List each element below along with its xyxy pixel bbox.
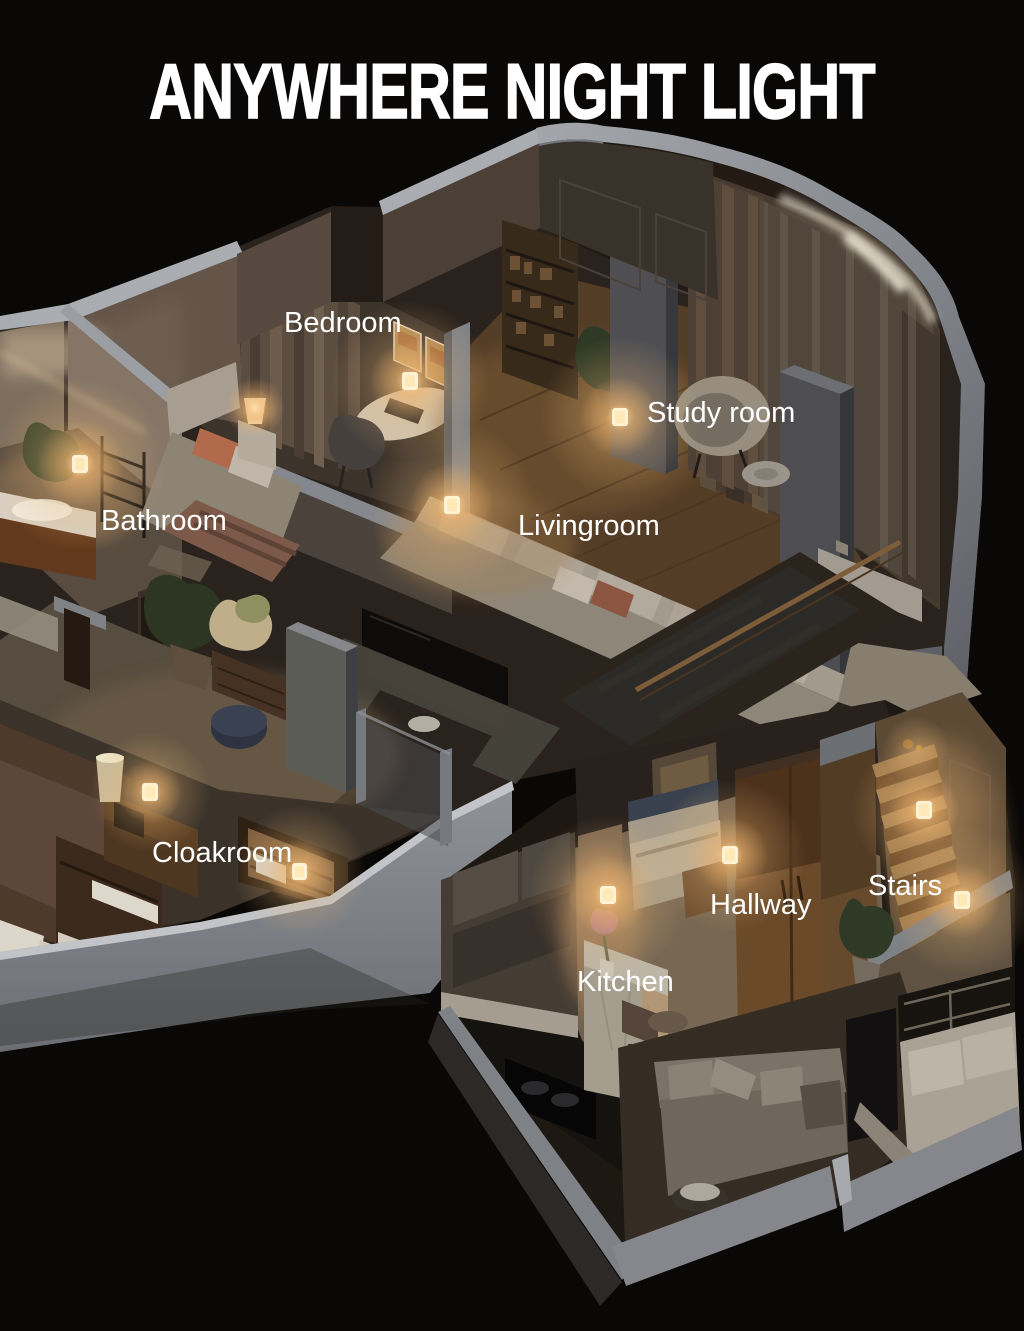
svg-text:Hallway: Hallway	[710, 889, 812, 921]
svg-text:Study room: Study room	[647, 397, 795, 429]
svg-text:Bathroom: Bathroom	[101, 505, 227, 537]
svg-text:Livingroom: Livingroom	[518, 510, 660, 542]
svg-text:Cloakroom: Cloakroom	[152, 837, 292, 869]
svg-text:Bedroom: Bedroom	[284, 307, 402, 339]
svg-text:Stairs: Stairs	[868, 870, 942, 902]
svg-text:Kitchen: Kitchen	[577, 966, 674, 998]
